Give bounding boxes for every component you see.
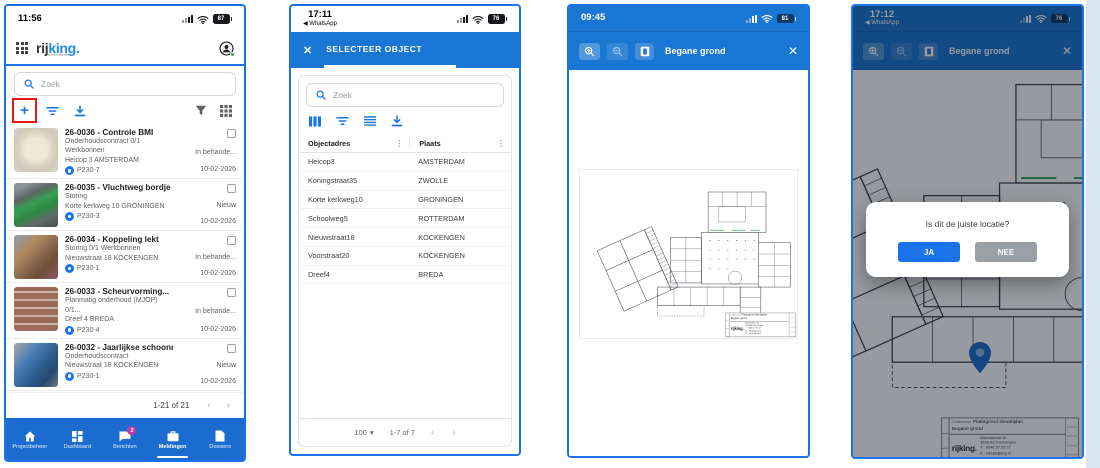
- plaats-cell: BREDA: [409, 266, 511, 284]
- add-work-order-button[interactable]: +: [18, 104, 31, 117]
- work-order-address: Nieuwstraat 18 KOCKENGEN: [65, 254, 173, 263]
- work-order-date: 10-02-2026: [200, 270, 236, 277]
- battery-icon: 81: [777, 14, 797, 24]
- plaats-cell: KOCKENGEN: [409, 228, 511, 246]
- project-pin-icon: [65, 372, 74, 381]
- floorplan-viewport[interactable]: Onderwerp:Plattegrond sleutelplanBegane …: [569, 70, 808, 456]
- work-order-title: 26-0033 - Scheurvorming...: [65, 287, 173, 296]
- plaats-cell: ZWOLLE: [409, 172, 511, 190]
- wifi-icon: [197, 15, 209, 24]
- table-row[interactable]: Heicop3AMSTERDAM: [299, 153, 511, 172]
- columns-icon[interactable]: [309, 116, 321, 127]
- search-icon: [24, 79, 34, 89]
- titleblock-address: Nieuwstraat 18 3628 AC Kockengen T : 034…: [745, 322, 763, 335]
- table-row[interactable]: Koningstraat35ZWOLLE: [299, 172, 511, 191]
- phone-screen-floorplan: 09:45 81 Begane grond ✕ Onderwerp:Platte…: [567, 4, 810, 458]
- project-code: P230-1: [77, 373, 100, 380]
- phone-screen-select-object: 17:11 ◀ WhatsApp 76 ✕ SELECTEER OBJECT O…: [289, 4, 521, 456]
- work-order-date: 10-02-2026: [200, 218, 236, 225]
- work-order-address: Korte kerkweg 10 GRONINGEN: [65, 202, 173, 211]
- work-order-thumbnail: [14, 183, 58, 227]
- work-order-type: Onderhoudscontract 0/1 Werkbonnen: [65, 137, 173, 156]
- work-order-date: 10-02-2026: [200, 378, 236, 385]
- cellular-signal-icon: [457, 15, 468, 23]
- floorplan-appbar: Begane grond ✕: [569, 32, 808, 70]
- chat-icon: 2: [118, 430, 131, 442]
- project-code: P230-4: [77, 327, 100, 334]
- work-order-address: Heicop 3 AMSTERDAM: [65, 156, 173, 165]
- project-code: P230-7: [77, 167, 100, 174]
- download-icon[interactable]: [74, 105, 86, 117]
- work-order-title: 26-0036 - Controle BMI: [65, 128, 173, 137]
- column-menu-icon[interactable]: ⋮: [395, 139, 403, 148]
- plaats-cell: ROTTERDAM: [409, 209, 511, 227]
- work-order-type: Storing: [65, 192, 173, 201]
- floorplan-title: Begane grond: [665, 46, 726, 56]
- work-order-type: Storing 0/1 Werkbonnen: [65, 244, 173, 253]
- app-header: rijking. bouwkundig advies: [6, 32, 244, 66]
- pagination-range: 1-21 of 21: [153, 401, 189, 410]
- table-toolbar: [299, 110, 511, 134]
- objectadres-cell: Korte kerkweg10: [299, 191, 409, 209]
- bottom-navigation: Projectbeheer Dashboard 2 Berichten Meld…: [6, 418, 244, 460]
- grid-view-icon[interactable]: [220, 105, 232, 117]
- column-header-objectadres[interactable]: Objectadres: [308, 139, 350, 148]
- nav-item-meldingen[interactable]: Meldingen: [149, 418, 197, 460]
- clock: 11:56: [18, 14, 42, 24]
- row-checkbox[interactable]: [227, 236, 236, 245]
- search-input[interactable]: [41, 79, 226, 89]
- work-order-thumbnail: [14, 287, 58, 331]
- objectadres-cell: Schoolweg5: [299, 209, 409, 227]
- work-order-date: 10-02-2026: [200, 326, 236, 333]
- row-checkbox[interactable]: [227, 344, 236, 353]
- plaats-cell: KOCKENGEN: [409, 247, 511, 265]
- nav-label: Meldingen: [159, 444, 187, 450]
- dashboard-icon: [71, 430, 84, 442]
- phone-screen-location-confirm: 17:12 ◀ WhatsApp 76 Begane grond ✕ Onder…: [851, 4, 1084, 459]
- objectadres-cell: Heicop3: [299, 153, 409, 171]
- yes-button[interactable]: JA: [898, 242, 960, 262]
- logo-text-dark: rij: [36, 40, 48, 56]
- apps-grid-menu-icon[interactable]: [16, 42, 28, 54]
- phone-screen-work-orders: 11:56 87 rijking. bouwkundig advies +: [4, 4, 246, 462]
- page-size-value: 100: [354, 428, 367, 437]
- work-order-title: 26-0034 - Koppeling lekt: [65, 235, 173, 244]
- work-order-row[interactable]: 26-0032 - Jaarlijkse schoonmaak... Onder…: [6, 339, 244, 391]
- table-row[interactable]: Schoolweg5ROTTERDAM: [299, 209, 511, 228]
- search-icon: [316, 90, 326, 100]
- search-input[interactable]: [333, 90, 494, 100]
- unread-count-badge: 2: [127, 426, 136, 435]
- titleblock-subject: Plattegrond sleutelplan: [742, 314, 768, 317]
- close-icon[interactable]: ✕: [303, 44, 312, 57]
- column-header-plaats[interactable]: Plaats: [419, 139, 441, 148]
- download-icon[interactable]: [391, 115, 403, 127]
- work-order-address: Nieuwstraat 18 KOCKENGEN: [65, 361, 173, 370]
- prev-page-icon[interactable]: ‹: [207, 400, 210, 411]
- work-order-address: Dreef 4 BREDA: [65, 315, 173, 324]
- work-order-row[interactable]: 26-0036 - Controle BMI Onderhoudscontrac…: [6, 124, 244, 179]
- project-code: P230-1: [77, 265, 100, 272]
- row-checkbox[interactable]: [227, 288, 236, 297]
- work-order-title: 26-0032 - Jaarlijkse schoonmaak...: [65, 343, 173, 352]
- nav-label: Projectbeheer: [12, 444, 47, 450]
- plaats-cell: GRONINGEN: [409, 191, 511, 209]
- project-pin-icon: [65, 264, 74, 273]
- work-order-status: Nieuw: [217, 362, 236, 369]
- clock: 17:11: [308, 10, 332, 20]
- back-arrow-icon: ◀: [303, 21, 308, 27]
- zoom-in-button[interactable]: [579, 43, 600, 60]
- cellular-signal-icon: [182, 15, 193, 23]
- work-order-title: 26-0035 - Vluchtweg bordje: [65, 183, 173, 192]
- battery-percent: 87: [213, 14, 230, 24]
- select-object-appbar: ✕ SELECTEER OBJECT: [291, 32, 519, 68]
- work-order-type: Planmatig onderhoud (MJOP) 0/1...: [65, 296, 173, 315]
- cellular-signal-icon: [746, 15, 757, 23]
- work-order-row[interactable]: 26-0034 - Koppeling lekt Storing 0/1 Wer…: [6, 231, 244, 283]
- row-checkbox[interactable]: [227, 129, 236, 138]
- page-edge-shadow: [1086, 0, 1100, 468]
- sort-filter-icon[interactable]: [46, 106, 59, 116]
- work-order-thumbnail: [14, 235, 58, 279]
- work-order-row[interactable]: 26-0033 - Scheurvorming... Planmatig ond…: [6, 283, 244, 338]
- pagination-range: 1-7 of 7: [390, 428, 415, 437]
- project-code: P230-3: [77, 213, 100, 220]
- work-order-list: 26-0036 - Controle BMI Onderhoudscontrac…: [6, 124, 244, 392]
- titleblock-label: Onderwerp:: [731, 314, 741, 316]
- table-row[interactable]: Korte kerkweg10GRONINGEN: [299, 191, 511, 210]
- work-order-type: Onderhoudscontract: [65, 352, 173, 361]
- next-page-icon[interactable]: ›: [452, 427, 455, 438]
- back-app-name: WhatsApp: [309, 21, 337, 27]
- objectadres-cell: Nieuwstraat18: [299, 228, 409, 246]
- project-pin-icon: [65, 166, 74, 175]
- table-row[interactable]: Nieuwstraat18KOCKENGEN: [299, 228, 511, 247]
- wifi-icon: [472, 15, 484, 24]
- nav-item-dashboard[interactable]: Dashboard: [54, 418, 102, 460]
- logo-tagline: bouwkundig advies: [48, 53, 71, 57]
- table-header-row: Objectadres⋮ Plaats⋮: [299, 134, 511, 153]
- density-menu-icon[interactable]: [364, 116, 376, 126]
- clock: 09:45: [581, 13, 605, 23]
- document-icon: [214, 430, 227, 442]
- confirm-location-dialog: Is dit de juiste locatie? JA NEE: [866, 202, 1069, 277]
- zoom-out-button[interactable]: [607, 43, 628, 60]
- work-order-row[interactable]: 26-0035 - Vluchtweg bordje Storing Korte…: [6, 179, 244, 231]
- sort-filter-icon[interactable]: [336, 116, 349, 126]
- work-order-thumbnail: [14, 128, 58, 172]
- table-pagination: 100▾ 1-7 of 7 ‹ ›: [299, 418, 511, 446]
- work-order-status: In behande...: [195, 254, 236, 261]
- tab-selecteer-object[interactable]: SELECTEER OBJECT: [324, 32, 456, 68]
- annotation-highlight-box: [12, 98, 37, 123]
- row-checkbox[interactable]: [227, 184, 236, 193]
- nav-label: Dossiers: [209, 444, 231, 450]
- status-bar: 09:45 81: [569, 6, 808, 32]
- objectadres-cell: Voorstraat20: [299, 247, 409, 265]
- battery-icon: 87: [213, 14, 233, 24]
- plaats-cell: AMSTERDAM: [409, 153, 511, 171]
- titleblock-floor: Begane grond: [731, 317, 747, 320]
- funnel-filter-icon[interactable]: [195, 105, 207, 116]
- work-order-status: Nieuw: [217, 202, 236, 209]
- online-status-dot: [230, 52, 235, 57]
- objectadres-cell: Koningstraat35: [299, 172, 409, 190]
- nav-item-dossiers[interactable]: Dossiers: [196, 418, 244, 460]
- next-page-icon[interactable]: ›: [227, 400, 230, 411]
- account-avatar-icon[interactable]: [219, 41, 234, 56]
- project-pin-icon: [65, 212, 74, 221]
- rijking-logo: rijking. bouwkundig advies: [36, 40, 80, 56]
- rijking-logo: rijking.: [731, 326, 744, 331]
- search-bar[interactable]: [306, 83, 504, 107]
- wifi-icon: [761, 14, 773, 23]
- object-table-card: Objectadres⋮ Plaats⋮ Heicop3AMSTERDAM Ko…: [298, 75, 512, 447]
- page-size-select[interactable]: 100▾: [354, 428, 373, 437]
- nav-item-projectbeheer[interactable]: Projectbeheer: [6, 418, 54, 460]
- nav-item-berichten[interactable]: 2 Berichten: [101, 418, 149, 460]
- home-icon: [23, 430, 36, 442]
- titleblock: Onderwerp:Plattegrond sleutelplanBegane …: [725, 313, 796, 337]
- table-row[interactable]: Voorstraat20KOCKENGEN: [299, 247, 511, 266]
- nav-label: Berichten: [113, 444, 137, 450]
- work-order-thumbnail: [14, 343, 58, 387]
- work-order-date: 10-02-2026: [200, 166, 236, 173]
- back-to-app-link[interactable]: ◀ WhatsApp: [303, 21, 337, 28]
- dialog-message: Is dit de juiste locatie?: [876, 219, 1059, 229]
- battery-percent: 81: [777, 14, 794, 24]
- floorplan-select-icon[interactable]: [635, 43, 654, 60]
- work-order-status: In behande...: [195, 149, 236, 156]
- status-bar: 17:11 ◀ WhatsApp 76: [291, 6, 519, 32]
- battery-percent: 76: [488, 14, 505, 24]
- briefcase-icon: [166, 430, 179, 442]
- no-button[interactable]: NEE: [975, 242, 1037, 262]
- caret-down-icon: ▾: [370, 428, 374, 437]
- objectadres-cell: Dreef4: [299, 266, 409, 284]
- battery-icon: 76: [488, 14, 508, 24]
- prev-page-icon[interactable]: ‹: [431, 427, 434, 438]
- close-icon[interactable]: ✕: [788, 44, 798, 58]
- list-pagination: 1-21 of 21 ‹ ›: [6, 392, 244, 418]
- nav-label: Dashboard: [64, 444, 91, 450]
- work-order-status: In behande...: [195, 308, 236, 315]
- project-pin-icon: [65, 326, 74, 335]
- table-row[interactable]: Dreef4BREDA: [299, 266, 511, 285]
- list-toolbar: +: [6, 100, 244, 124]
- search-bar[interactable]: [14, 72, 236, 96]
- status-bar: 11:56 87: [6, 6, 244, 32]
- column-menu-icon[interactable]: ⋮: [497, 139, 505, 148]
